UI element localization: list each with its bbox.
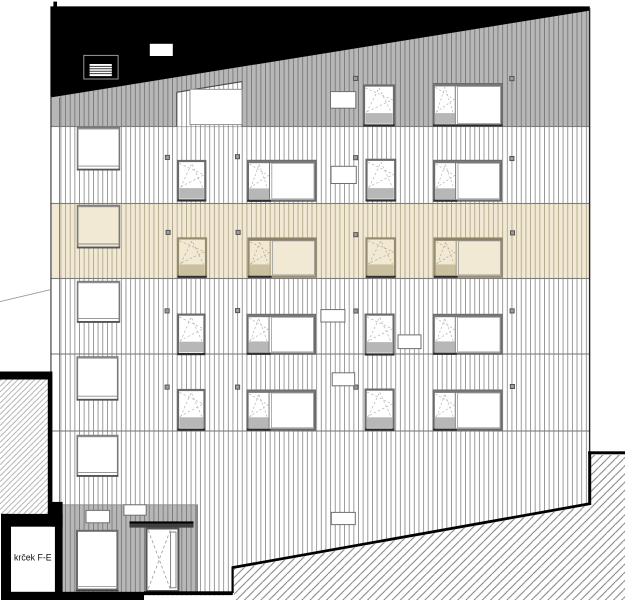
svg-text:krček F-E: krček F-E: [14, 552, 52, 562]
